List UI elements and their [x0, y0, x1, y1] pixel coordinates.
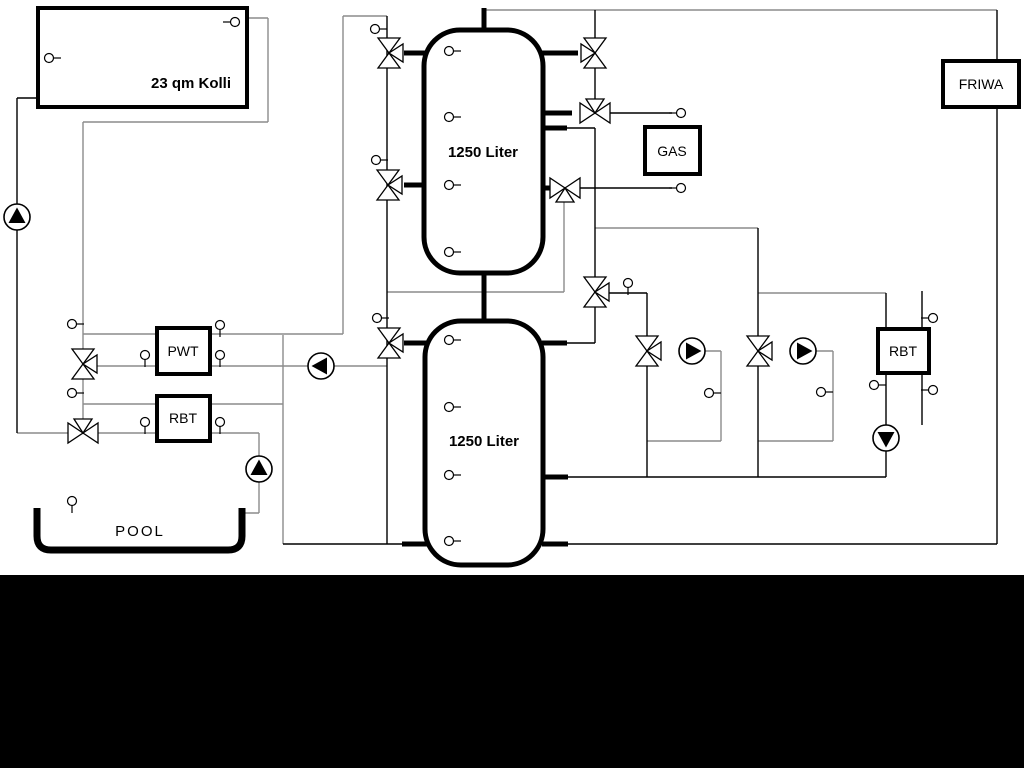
pool-pump-icon	[246, 456, 272, 482]
solar-collector: 23 qm Kolli	[38, 8, 247, 107]
circuit1-pump-icon	[679, 338, 705, 364]
letterbox-bar	[0, 575, 1024, 768]
pool-label: POOL	[115, 523, 165, 540]
buffer-tank-bottom-label: 1250 Liter	[449, 433, 519, 450]
sensor-icon	[371, 25, 388, 34]
hydraulic-schematic-page: 23 qm Kolli 1250 Liter 1250 Liter PWT RB…	[0, 0, 1024, 768]
sensor-icon	[216, 418, 225, 435]
rbt-dhw-label: RBT	[889, 343, 917, 359]
rbt-pool-label: RBT	[169, 410, 197, 426]
sensor-icon	[141, 418, 150, 435]
sensor-icon	[141, 351, 150, 368]
buffer-tank-bottom: 1250 Liter	[425, 321, 543, 565]
sensor-icon	[870, 381, 887, 390]
sensor-icon	[669, 184, 686, 193]
three-way-valve-tank1-left-bottom	[377, 170, 402, 200]
rbt-dhw-heat-exchanger: RBT	[878, 329, 929, 373]
three-way-valve-circuit1	[636, 336, 661, 366]
sensor-icon	[68, 389, 85, 398]
sensor-icon	[921, 314, 938, 323]
three-way-valve-tank2-right	[584, 277, 609, 307]
three-way-valve-gas-return	[550, 178, 580, 202]
three-way-valve-pwt	[72, 349, 97, 379]
sensor-icon	[817, 388, 834, 397]
three-way-valve-tank1-right-top	[581, 38, 606, 68]
gas-boiler-label: GAS	[657, 143, 687, 159]
rbt-dhw-pump-icon	[873, 425, 899, 451]
buffer-tank-top: 1250 Liter	[424, 30, 543, 273]
pwt-pump-icon	[308, 353, 334, 379]
sensor-icon	[705, 389, 722, 398]
sensor-icon	[372, 156, 389, 165]
three-way-valve-tank2-left	[378, 328, 403, 358]
sensor-icon	[921, 386, 938, 395]
friwa-station: FRIWA	[943, 61, 1019, 107]
solar-pump-icon	[4, 204, 30, 230]
collector-label: 23 qm Kolli	[151, 75, 231, 92]
gas-boiler: GAS	[645, 127, 700, 174]
buffer-tank-top-label: 1250 Liter	[448, 144, 518, 161]
three-way-valve-gas-flow	[580, 99, 610, 123]
pwt-label: PWT	[167, 343, 199, 359]
sensor-icon	[216, 351, 225, 368]
hydraulic-schematic-canvas: 23 qm Kolli 1250 Liter 1250 Liter PWT RB…	[0, 0, 1024, 768]
pool: POOL	[37, 508, 242, 550]
three-way-valve-pool-rbt	[68, 419, 98, 443]
sensor-icon	[68, 320, 85, 329]
sensor-icon	[669, 109, 686, 118]
sensor-icon	[68, 497, 77, 514]
three-way-valve-tank1-left-top	[378, 38, 403, 68]
circuit2-pump-icon	[790, 338, 816, 364]
friwa-label: FRIWA	[959, 76, 1004, 92]
pwt-heat-exchanger: PWT	[157, 328, 210, 374]
rbt-pool-heat-exchanger: RBT	[157, 396, 210, 441]
three-way-valve-circuit2	[747, 336, 772, 366]
